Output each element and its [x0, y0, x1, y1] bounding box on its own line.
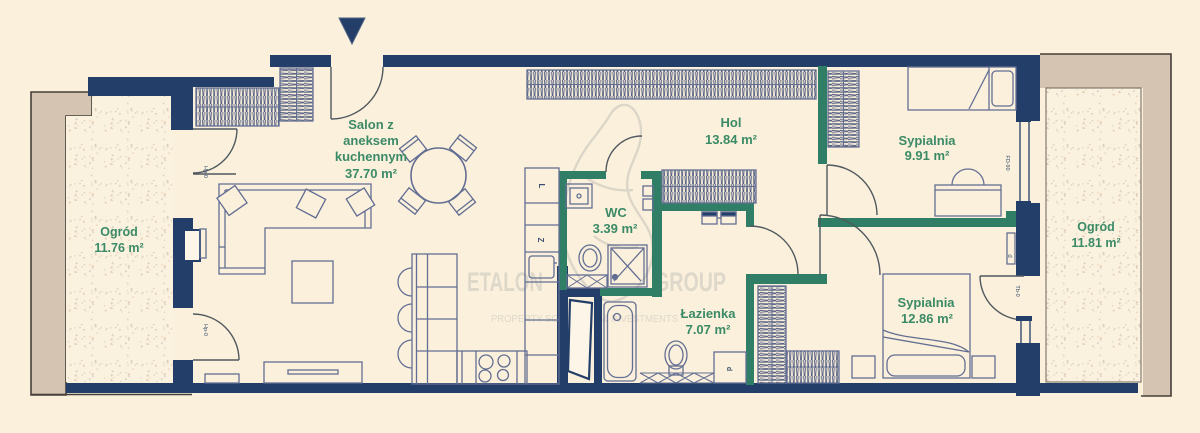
svg-text:Hp-0: Hp-0: [202, 166, 208, 178]
svg-text:11.81 m²: 11.81 m²: [1071, 236, 1120, 250]
svg-text:13.84 m²: 13.84 m²: [705, 132, 758, 147]
svg-text:Ogród: Ogród: [100, 225, 138, 239]
svg-text:Łazienka: Łazienka: [681, 306, 737, 321]
svg-text:Z: Z: [536, 238, 545, 243]
svg-text:Hol: Hol: [721, 115, 742, 130]
svg-text:Sypialnia: Sypialnia: [898, 133, 956, 148]
svg-text:Tb-0: Tb-0: [1014, 285, 1020, 296]
svg-text:d: d: [725, 367, 732, 371]
svg-text:L: L: [537, 184, 546, 189]
svg-text:d: d: [1006, 254, 1012, 257]
svg-text:Sypialnia: Sypialnia: [897, 295, 955, 310]
svg-text:9.91 m²: 9.91 m²: [905, 148, 950, 163]
svg-text:Ogród: Ogród: [1077, 220, 1115, 234]
svg-text:3.39 m²: 3.39 m²: [593, 221, 638, 236]
svg-text:FD-90: FD-90: [1004, 155, 1010, 170]
svg-text:WC: WC: [605, 205, 627, 220]
svg-text:aneksem: aneksem: [343, 133, 399, 148]
svg-text:12.86 m²: 12.86 m²: [901, 311, 954, 326]
svg-text:11.76 m²: 11.76 m²: [94, 241, 143, 255]
svg-text:kuchennym: kuchennym: [335, 149, 407, 164]
svg-text:37.70 m²: 37.70 m²: [345, 166, 398, 181]
svg-text:Hp-0: Hp-0: [202, 324, 208, 336]
svg-text:7.07 m²: 7.07 m²: [686, 322, 731, 337]
svg-text:GROUP: GROUP: [654, 267, 726, 297]
svg-text:Salon z: Salon z: [348, 117, 394, 132]
